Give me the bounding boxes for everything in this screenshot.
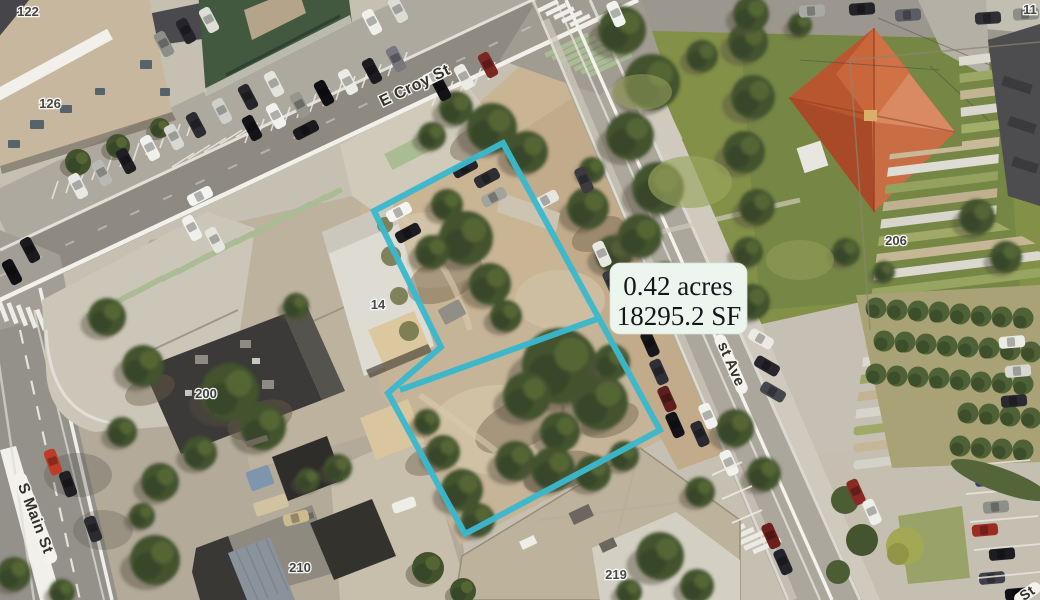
svg-text:0.42 acres: 0.42 acres	[623, 271, 732, 301]
svg-text:210: 210	[289, 560, 311, 575]
svg-text:126: 126	[39, 96, 61, 111]
svg-text:200: 200	[195, 386, 217, 401]
svg-text:219: 219	[605, 567, 627, 582]
svg-text:122: 122	[17, 4, 39, 19]
svg-text:11: 11	[1023, 2, 1037, 17]
svg-text:206: 206	[885, 233, 907, 248]
svg-text:14: 14	[371, 297, 386, 312]
svg-text:18295.2 SF: 18295.2 SF	[617, 301, 742, 331]
